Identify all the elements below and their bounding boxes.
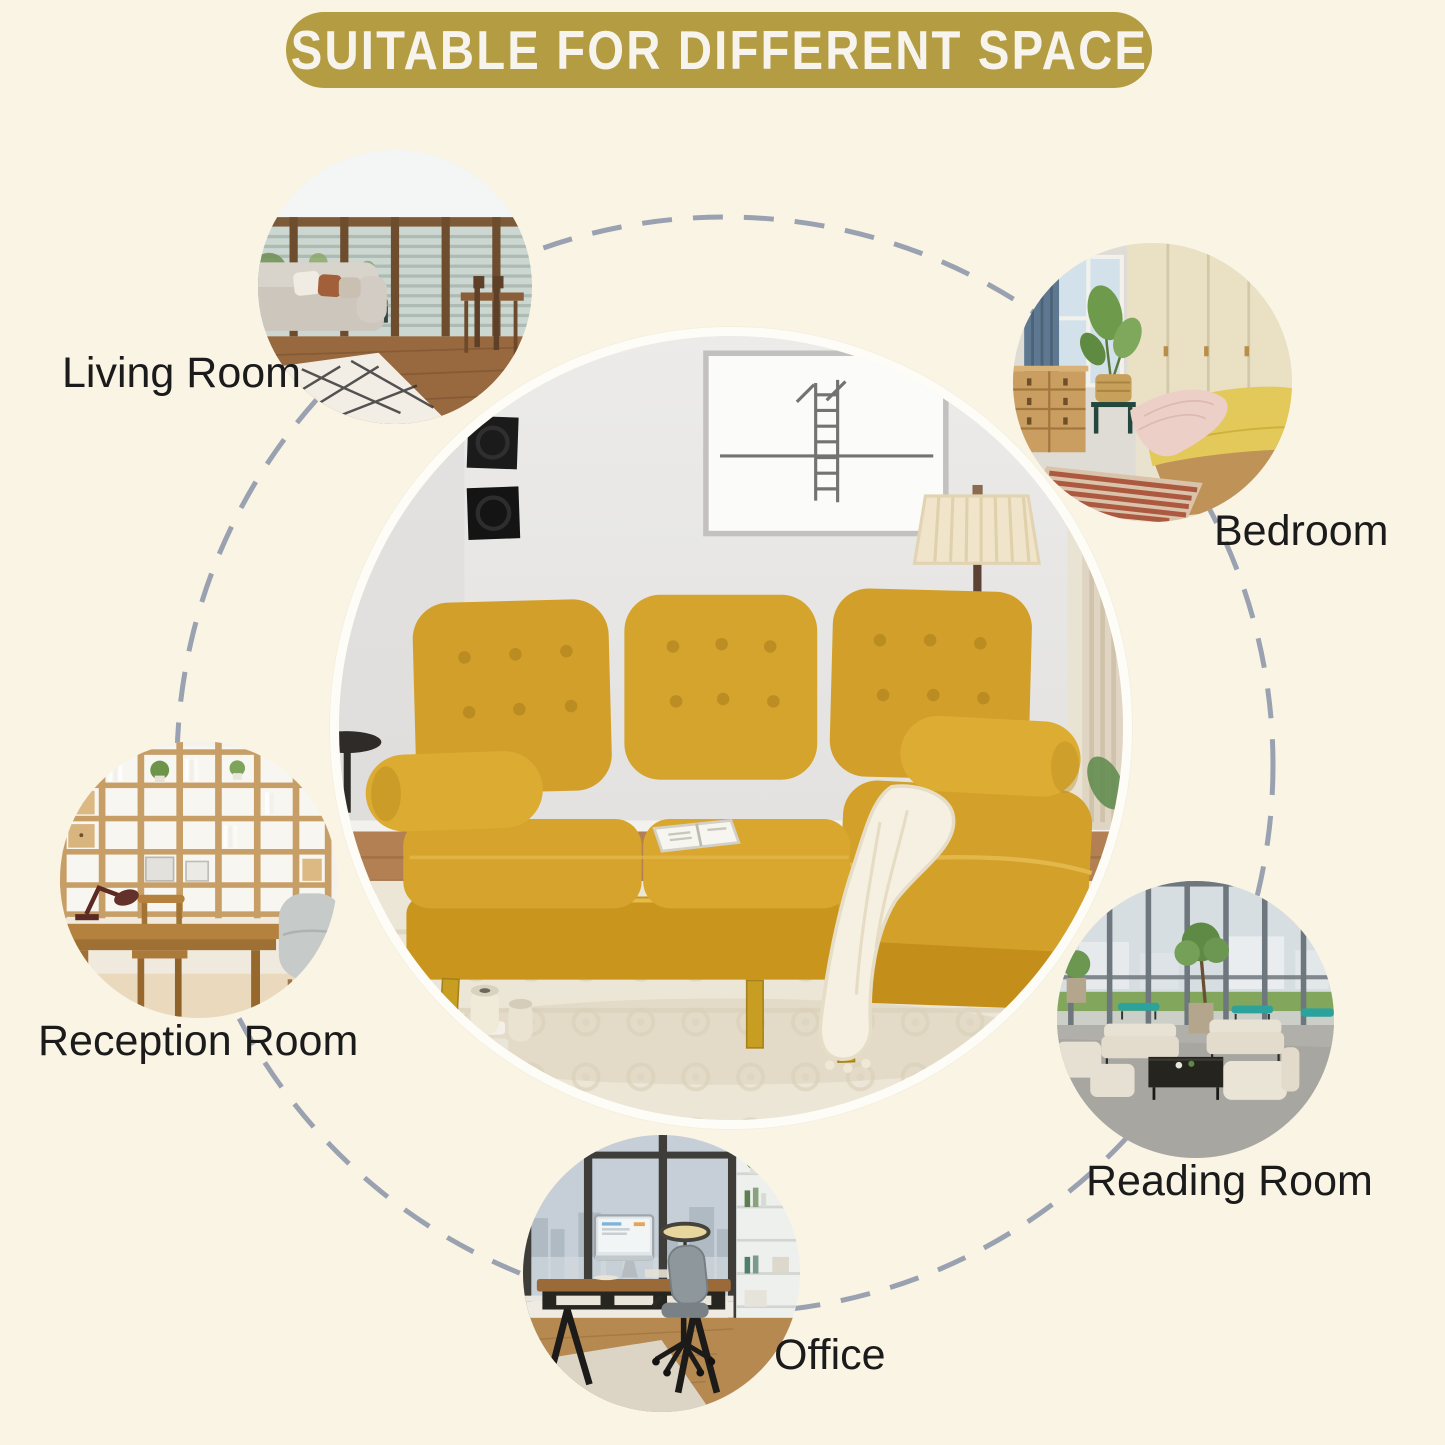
- wood-dresser: [1013, 366, 1088, 452]
- reading-room-scene: [1057, 881, 1334, 1158]
- title-text: SUITABLE FOR DIFFERENT SPACE: [290, 18, 1147, 82]
- reception-room-scene: [60, 741, 337, 1018]
- main-sofa-photo: [330, 327, 1132, 1129]
- bedroom-scene: [1013, 243, 1292, 522]
- title-banner: SUITABLE FOR DIFFERENT SPACE: [286, 12, 1152, 88]
- reading-room-photo: [1057, 881, 1334, 1158]
- reception-room-photo: [60, 741, 337, 1018]
- bedroom-photo: [1013, 243, 1292, 522]
- office-scene: [523, 1135, 800, 1412]
- label-reading-room: Reading Room: [1086, 1158, 1373, 1205]
- sofa-room-scene: [339, 336, 1123, 1120]
- product-infographic: SUITABLE FOR DIFFERENT SPACE: [0, 0, 1445, 1445]
- label-bedroom: Bedroom: [1214, 508, 1388, 555]
- gray-sofa: [258, 262, 387, 331]
- label-living-room: Living Room: [62, 350, 301, 397]
- wall-art-frame: [706, 353, 946, 533]
- label-reception-room: Reception Room: [38, 1018, 358, 1065]
- office-photo: [523, 1135, 800, 1412]
- label-office: Office: [774, 1332, 886, 1379]
